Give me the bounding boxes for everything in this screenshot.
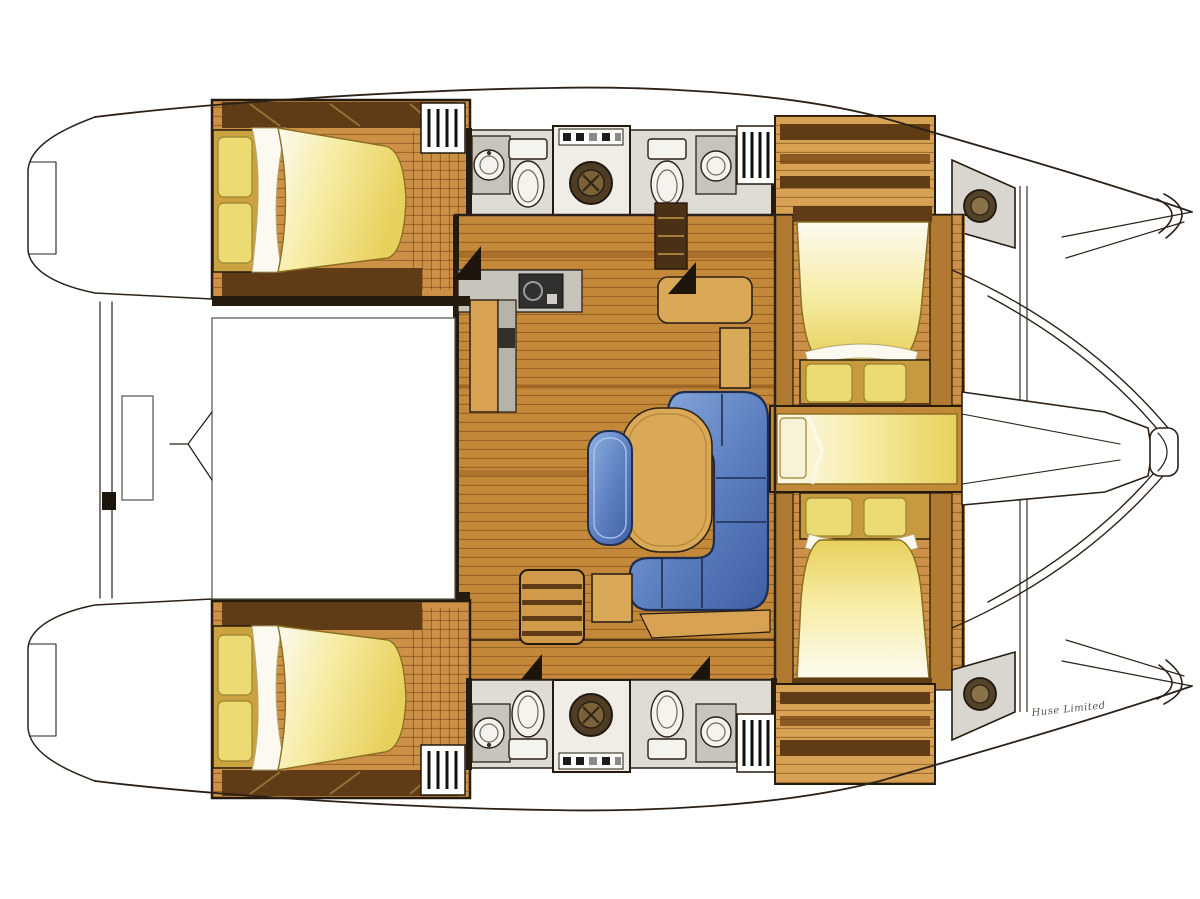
- double-bed-athwartship: [797, 222, 929, 360]
- catamaran-floorplan: Huse Limited: [0, 0, 1200, 899]
- toilet-tank: [509, 739, 547, 759]
- bed-side-trim: [775, 493, 793, 690]
- toilet-icon: [512, 161, 544, 207]
- plank-texture: [775, 684, 935, 784]
- bulkhead: [466, 128, 472, 220]
- starboard-heads: [466, 678, 777, 772]
- bulkhead: [466, 678, 472, 770]
- step-landing: [592, 574, 632, 622]
- toilet-tank: [648, 739, 686, 759]
- starboard-aft-cabin: [212, 600, 470, 798]
- plank-texture-foot: [405, 608, 467, 766]
- faucet-dot: [487, 151, 491, 155]
- starboard-bow-inner-lines: [1062, 640, 1192, 686]
- pillow: [806, 364, 852, 402]
- toilet-tank: [648, 139, 686, 159]
- bed-foot-board: [793, 206, 932, 222]
- toilet-icon: [651, 161, 683, 207]
- bed-side-trim: [775, 215, 793, 407]
- transom-step-notches: [30, 162, 56, 736]
- pillow: [218, 137, 252, 197]
- dining-table: [622, 408, 712, 552]
- aft-crossbeam: [100, 302, 112, 598]
- port-bow-inner-lines: [1062, 212, 1192, 258]
- floorplan-canvas: Huse Limited: [0, 0, 1200, 899]
- step-riser: [522, 631, 582, 636]
- step-riser: [522, 584, 582, 589]
- pillow: [864, 364, 906, 402]
- fridge-column: [498, 300, 516, 412]
- stove-sink-square: [547, 294, 557, 304]
- toilet-tank: [509, 139, 547, 159]
- pillow: [218, 203, 252, 263]
- pillow: [864, 498, 906, 536]
- double-bed: [278, 626, 406, 770]
- pillow: [806, 498, 852, 536]
- port-cabin-inboard-wall: [212, 296, 470, 306]
- plank-texture: [455, 640, 775, 680]
- bed-side-trim: [930, 215, 952, 407]
- bed-side-trim: [930, 493, 952, 690]
- galley-tall-cabinet: [470, 300, 498, 412]
- forward-cabins: [770, 206, 968, 694]
- port-heads: [466, 126, 777, 220]
- galley-island: [658, 277, 752, 323]
- double-bed-athwartship: [797, 540, 929, 678]
- port-aft-cabin: [212, 100, 470, 298]
- step-riser: [522, 600, 582, 605]
- bow-fitting-cap: [1150, 428, 1178, 476]
- faucet-dot: [487, 743, 491, 747]
- vanity-sink-inner: [971, 685, 989, 703]
- designer-signature: Huse Limited: [1030, 700, 1106, 719]
- aft-beam-fitting: [102, 492, 116, 510]
- cockpit: [212, 318, 455, 599]
- floor-streak: [455, 252, 775, 258]
- toilet-icon: [651, 691, 683, 737]
- sink-icon: [701, 717, 731, 747]
- island-cabinet: [720, 328, 750, 388]
- double-bed: [278, 128, 406, 272]
- step-riser: [522, 616, 582, 621]
- toilet-icon: [512, 691, 544, 737]
- vanity-sink-inner: [971, 197, 989, 215]
- helm-pedestal: [170, 412, 212, 480]
- anchor-locker-pod: [962, 392, 1152, 505]
- pillow: [218, 635, 252, 695]
- plank-texture: [775, 116, 935, 216]
- berth-pillow: [780, 418, 806, 478]
- pillow: [218, 701, 252, 761]
- fridge-panel: [498, 328, 515, 348]
- sink-icon: [701, 151, 731, 181]
- helm-seat: [122, 396, 153, 500]
